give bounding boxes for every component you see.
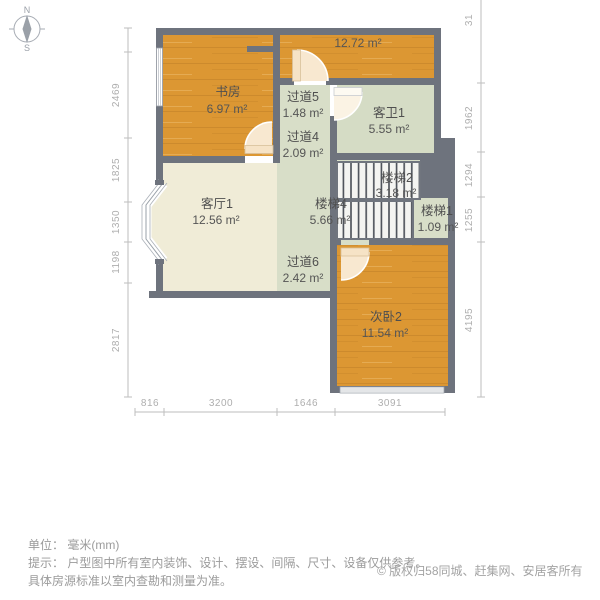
wall-top	[156, 28, 441, 35]
dim-right-4: 4195	[464, 308, 475, 332]
bathroom-area: 5.55 m²	[369, 122, 410, 136]
compass-north-label: N	[24, 5, 31, 15]
hallway4-area: 2.09 m²	[283, 146, 324, 160]
hallway5-name: 过道5	[287, 90, 319, 104]
study-name: 书房	[215, 84, 240, 99]
dimension-left-labels: 2469 1825 1350 1198 2817	[111, 83, 122, 352]
compass: N S	[9, 5, 45, 53]
bathroom-name: 客卫1	[373, 105, 405, 120]
living-name: 客厅1	[201, 196, 233, 211]
dim-left-3: 1198	[111, 250, 122, 274]
wall-bedroom-left	[330, 245, 337, 393]
compass-needle-icon	[23, 15, 32, 43]
stairs2-name: 楼梯2	[381, 170, 413, 185]
wall-toproom-bottom-left	[280, 78, 294, 85]
wall-study-stub	[247, 46, 273, 52]
dimension-right-chain	[477, 0, 485, 397]
dim-left-1: 1825	[111, 158, 122, 182]
stairs2-area: 3.18 m²	[376, 186, 417, 200]
dim-right-0: 31	[464, 14, 475, 26]
dimension-bottom-labels: 816 3200 1646 3091	[141, 398, 402, 409]
unit-note: 单位： 毫米(mm)	[28, 536, 119, 553]
dimension-left-chain	[124, 28, 132, 397]
disclaimer-line2: 具体房源标准以室内查勘和测量为准。	[28, 572, 232, 589]
wall-right-lower	[448, 138, 455, 393]
dimension-right-labels: 31 1962 1294 1255 4195	[464, 14, 475, 332]
living-area: 12.56 m²	[192, 213, 239, 227]
dim-bottom-3: 3091	[378, 398, 402, 409]
dimension-bottom-chain	[135, 408, 445, 416]
top-room-area: 12.72 m²	[334, 36, 381, 50]
study-window	[157, 48, 163, 106]
dim-bottom-1: 3200	[209, 398, 233, 409]
stairs1-area: 1.09 m²	[418, 220, 459, 234]
stairs4-area: 5.66 m²	[310, 213, 351, 227]
bedroom2-window	[340, 387, 444, 393]
wall-study-right	[273, 28, 280, 163]
stairs4-name: 楼梯4	[315, 196, 347, 211]
dim-left-4: 2817	[111, 328, 122, 352]
hallway6-area: 2.42 m²	[283, 271, 324, 285]
wall-study-bottom	[156, 156, 245, 163]
hallway5-area: 1.48 m²	[283, 106, 324, 120]
floorplan-canvas: N S	[0, 0, 600, 440]
study-area: 6.97 m²	[207, 102, 248, 116]
disclaimer-line1: 提示： 户型图中所有室内装饰、设计、摆设、间隔、尺寸、设备仅供参考。	[28, 554, 427, 571]
hallway4-name: 过道4	[287, 130, 319, 144]
floorplan-page: N S	[0, 0, 600, 600]
dim-left-2: 1350	[111, 210, 122, 234]
wall-toproom-bottom-right	[326, 78, 441, 85]
dim-left-0: 2469	[111, 83, 122, 107]
dim-right-3: 1255	[464, 208, 475, 232]
compass-south-label: S	[24, 43, 30, 53]
living-floor	[163, 163, 277, 291]
copyright-notice: © 版权归58同城、赶集网、安居客所有	[377, 562, 583, 579]
dim-right-1: 1962	[464, 106, 475, 130]
dim-bottom-2: 1646	[294, 398, 318, 409]
stairs1-name: 楼梯1	[421, 203, 453, 218]
wall-stair-landing-block	[420, 160, 448, 198]
wall-living-bottom	[149, 291, 337, 298]
bedroom2-name: 次卧2	[370, 310, 402, 324]
wall-bathroom-bottom	[330, 153, 441, 160]
dim-right-2: 1294	[464, 163, 475, 187]
hallway6-name: 过道6	[287, 255, 319, 269]
wall-right-upper	[434, 28, 441, 145]
bedroom2-area: 11.54 m²	[362, 326, 408, 340]
dim-bottom-0: 816	[141, 398, 159, 409]
